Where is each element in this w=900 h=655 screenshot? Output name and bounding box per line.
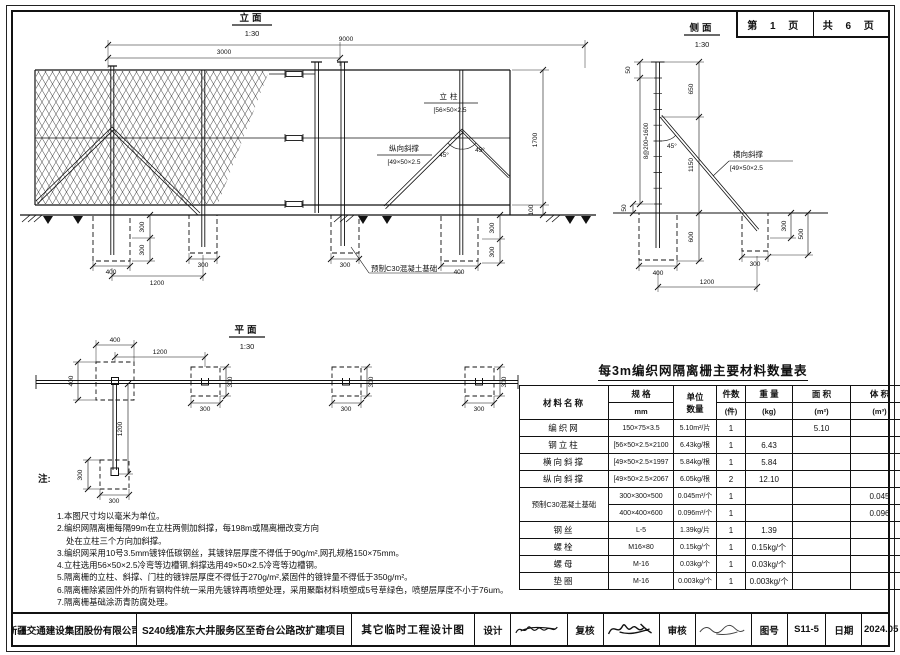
check-label: 复核	[568, 614, 604, 645]
plan-title: 平面	[234, 325, 259, 336]
project-name: S240线准东大井服务区至奇台公路改扩建项目	[137, 614, 352, 645]
audit-label: 审核	[660, 614, 696, 645]
side-diagonal-brace	[660, 115, 759, 231]
plan-dim-sq3-w: 300	[341, 406, 352, 413]
drawing-no: S11-5	[788, 614, 827, 645]
side-dim-cap: 50	[625, 66, 632, 74]
side-scale: 1:30	[695, 40, 710, 49]
elevation-dim-depth-b: 300	[139, 244, 146, 255]
post-spec: [56×50×2.5	[434, 107, 467, 114]
col-area: 面 积	[793, 386, 851, 403]
note-line: 7.隔离栅基础涂沥青防腐处理。	[57, 596, 527, 608]
page-number-box: 第 1 页 共 6 页	[736, 10, 890, 38]
drawing-no-label: 图号	[752, 614, 788, 645]
elevation-dim-depth-right-b: 300	[489, 246, 496, 257]
side-foundations	[639, 213, 768, 260]
col-unit-qty: 单位 数量	[674, 386, 717, 420]
elevation-dim-found2: 300	[198, 262, 209, 269]
materials-table: 材料名称 规 格 单位 数量 件数 重 量 面 积 体 积 mm (件) (kg…	[519, 385, 900, 590]
note-line: 处在立柱三个方向加斜撑。	[57, 535, 527, 547]
elevation-dim-found3: 300	[340, 262, 351, 269]
wire-mesh-panel	[36, 71, 269, 204]
side-dim-top: 650	[688, 83, 695, 94]
side-view: 侧面 1:30 50 8@200=1600 650 1150 45° 横向斜撑 …	[613, 22, 828, 292]
side-dim-mid: 1150	[688, 158, 695, 172]
page-current: 第 1 页	[738, 12, 814, 36]
designer-signature	[511, 614, 567, 645]
note-line: 6.隔离栅除紧固件外的所有钢构件统一采用先镀锌再喷塑处理，采用聚酯材料喷塑成5号…	[57, 584, 527, 596]
elevation-angle-right: 45°	[475, 146, 485, 154]
ground-markers	[43, 216, 591, 224]
table-row: 螺栓 M16×80 0.15kg/个 1 0.15kg/个	[520, 539, 900, 556]
longitudinal-brace-spec: [49×50×2.5	[388, 159, 421, 166]
note-line: 3.编织网采用10号3.5mm镀锌低碳钢丝，其镀锌层厚度不得低于90g/m²,网…	[57, 547, 527, 559]
plan-scale: 1:30	[240, 342, 255, 351]
table-row: 编织网 150×75×3.5 5.10m²/片 1 5.10	[520, 420, 900, 437]
plan-dim-sq4-w: 300	[474, 406, 485, 413]
drawing-title: 其它临时工程设计图	[352, 614, 476, 645]
plan-dim-sq1-w: 400	[110, 337, 121, 344]
plan-fence-centerline	[36, 375, 518, 470]
table-row: 钢立柱 [56×50×2.5×2100 6.43kg/根 1 6.43	[520, 437, 900, 454]
elevation-dim-found1: 400	[106, 269, 117, 276]
note-line: 5.隔离栅的立柱、斜撑、门柱的镀锌层厚度不得低于270g/m²,紧固件的镀锌量不…	[57, 571, 527, 583]
title-block: 新疆交通建设集团股份有限公司 S240线准东大井服务区至奇台公路改扩建项目 其它…	[11, 612, 890, 647]
side-dim-depth: 600	[688, 231, 695, 242]
col-spec: 规 格	[609, 386, 674, 403]
plan-dim-sq3-h: 300	[368, 376, 375, 387]
materials-table-section: 每3m编织网隔离栅主要材料数量表 材料名称 规 格 单位 数量 件数 重 量 面…	[519, 360, 887, 590]
plan-dim-sq5-w: 300	[109, 498, 120, 505]
table-row: 纵向斜撑 [49×50×2.5×2067 6.05kg/根 2 12.10	[520, 471, 900, 488]
side-dim-spacing: 1200	[700, 279, 715, 286]
side-dim-right-a: 300	[781, 220, 788, 231]
side-dim-holes: 8@200=1600	[644, 122, 650, 159]
side-dim-found-right: 300	[750, 261, 761, 268]
side-dim-found-left: 400	[653, 270, 664, 277]
checker-signature	[604, 614, 660, 645]
side-post	[651, 62, 665, 248]
lateral-brace-spec: [49×50×2.5	[730, 165, 763, 172]
table-row: 预制C30混凝土基础 300×300×500 0.045m³/个 1 0.045	[520, 488, 900, 505]
elevation-dim-depth-right-a: 300	[489, 222, 496, 233]
elevation-dim-found4: 400	[454, 269, 465, 276]
elevation-scale: 1:30	[245, 29, 260, 38]
materials-table-title: 每3m编织网隔离栅主要材料数量表	[519, 360, 887, 380]
elevation-dim-panel: 3000	[217, 49, 232, 56]
lateral-brace-label: 横向斜撑	[733, 149, 763, 159]
col-volume: 体 积	[851, 386, 900, 403]
date-label: 日期	[826, 614, 862, 645]
longitudinal-brace-label: 纵向斜撑	[389, 143, 419, 153]
page-total: 共 6 页	[814, 12, 889, 36]
auditor-signature	[696, 614, 752, 645]
plan-view: 平面 1:30 400 1200 400 300 300 300 300 300…	[36, 325, 518, 505]
elevation-dim-height: 1700	[532, 132, 539, 147]
elevation-view: 立面 1:30	[20, 12, 596, 287]
elevation-dim-rail-gap: 100	[528, 204, 535, 215]
elevation-dim-spacing: 1200	[150, 280, 165, 287]
side-dim-embed: 50	[621, 204, 628, 212]
plan-foundations	[96, 362, 494, 489]
col-weight: 重 量	[746, 386, 793, 403]
table-row: 钢丝 L-5 1.39kg/片 1 1.39	[520, 522, 900, 539]
design-label: 设计	[475, 614, 511, 645]
plan-dim-stem: 1200	[117, 421, 124, 436]
note-line: 4.立柱选用56×50×2.5冷弯等边槽钢,斜撑选用49×50×2.5冷弯等边槽…	[57, 559, 527, 571]
table-row: 横向斜撑 [49×50×2.5×1997 5.84kg/根 1 5.84	[520, 454, 900, 471]
notes-block: 1.本图尺寸均以毫米为单位。 2.编织网隔离栅每隔99m在立柱两侧加斜撑，每19…	[57, 510, 527, 608]
table-row: 垫圈 M-16 0.003kg/个 1 0.003kg/个	[520, 573, 900, 590]
drawing-sheet: { "page_box": { "current": "第 1 页", "tot…	[0, 0, 900, 655]
turnbuckle-tensioners	[269, 70, 315, 208]
plan-dim-sq1-h: 400	[68, 375, 75, 386]
elevation-angle-left: 45°	[439, 151, 449, 159]
plan-dim-sq2-h: 300	[227, 376, 234, 387]
foundation-label: 预制C30混凝土基础	[371, 263, 437, 273]
post-label: 立柱	[440, 91, 461, 101]
company-name: 新疆交通建设集团股份有限公司	[13, 614, 137, 645]
note-line: 2.编织网隔离栅每隔99m在立柱两侧加斜撑，每198m或隔离栅改变方向	[57, 522, 527, 534]
col-count: 件数	[717, 386, 746, 403]
side-title: 侧面	[689, 22, 714, 34]
elevation-dim-depth-a: 300	[139, 221, 146, 232]
elevation-dim-span: 9000	[339, 36, 354, 43]
elevation-title: 立面	[239, 12, 264, 24]
col-material: 材料名称	[520, 386, 609, 420]
date-value: 2024.05	[862, 614, 900, 645]
note-line: 1.本图尺寸均以毫米为单位。	[57, 510, 527, 522]
side-dim-right-b: 500	[798, 228, 805, 239]
plan-dim-spacing: 1200	[153, 349, 168, 356]
notes-label: 注:	[38, 471, 51, 485]
plan-dim-sq2-w: 300	[200, 406, 211, 413]
plan-dim-sq5-h: 300	[77, 469, 84, 480]
plan-dim-sq4-h: 300	[501, 376, 508, 387]
table-row: 螺母 M-16 0.03kg/个 1 0.03kg/个	[520, 556, 900, 573]
side-angle: 45°	[667, 142, 677, 150]
